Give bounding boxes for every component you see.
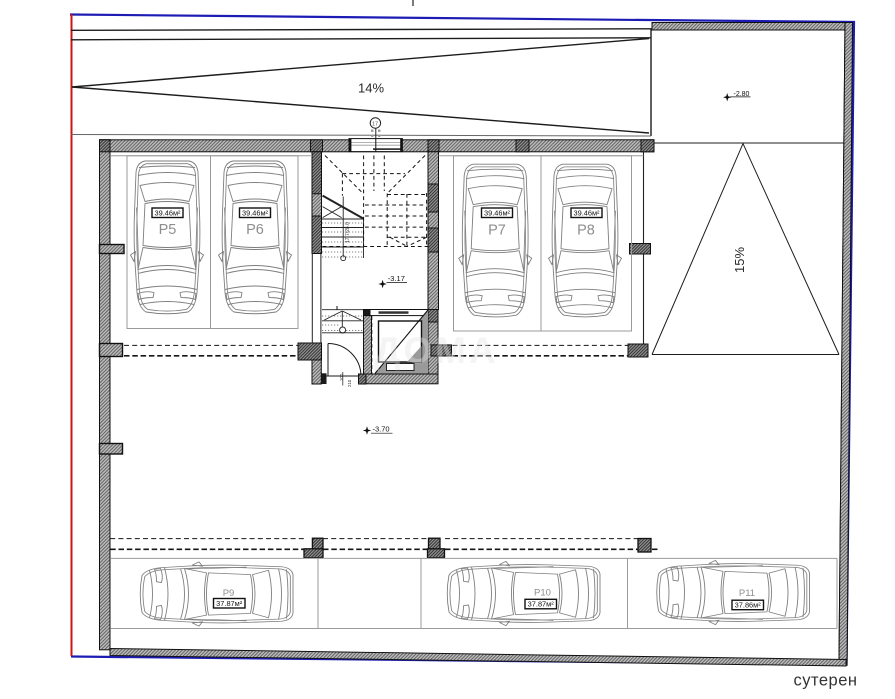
svg-text:17.7/28.0: 17.7/28.0 bbox=[345, 222, 351, 243]
svg-text:210: 210 bbox=[347, 379, 352, 387]
svg-text:39.46м²: 39.46м² bbox=[242, 208, 269, 217]
svg-text:P9: P9 bbox=[223, 588, 235, 599]
svg-text:P8: P8 bbox=[577, 222, 595, 238]
svg-text:39.46м²: 39.46м² bbox=[484, 208, 511, 217]
svg-text:37.86м²: 37.86м² bbox=[735, 601, 762, 610]
svg-text:-3.70: -3.70 bbox=[373, 425, 390, 434]
svg-text:P6: P6 bbox=[246, 222, 264, 238]
svg-text:39.46м²: 39.46м² bbox=[573, 208, 600, 217]
svg-text:37.87м²: 37.87м² bbox=[216, 599, 243, 608]
svg-text:ДОМА: ДОМА bbox=[374, 330, 499, 371]
svg-text:P7: P7 bbox=[488, 222, 506, 238]
svg-text:100: 100 bbox=[339, 373, 344, 381]
svg-text:-3.17: -3.17 bbox=[388, 274, 405, 283]
svg-text:17: 17 bbox=[372, 122, 378, 128]
svg-text:15%: 15% bbox=[732, 247, 747, 273]
svg-text:P5: P5 bbox=[159, 222, 177, 238]
svg-text:37.87м²: 37.87м² bbox=[528, 600, 555, 609]
svg-text:39.46м²: 39.46м² bbox=[154, 208, 181, 217]
svg-text:P10: P10 bbox=[534, 588, 551, 599]
svg-text:14%: 14% bbox=[358, 81, 384, 96]
svg-text:P11: P11 bbox=[739, 588, 755, 599]
svg-text:сутерен: сутерен bbox=[794, 672, 858, 690]
